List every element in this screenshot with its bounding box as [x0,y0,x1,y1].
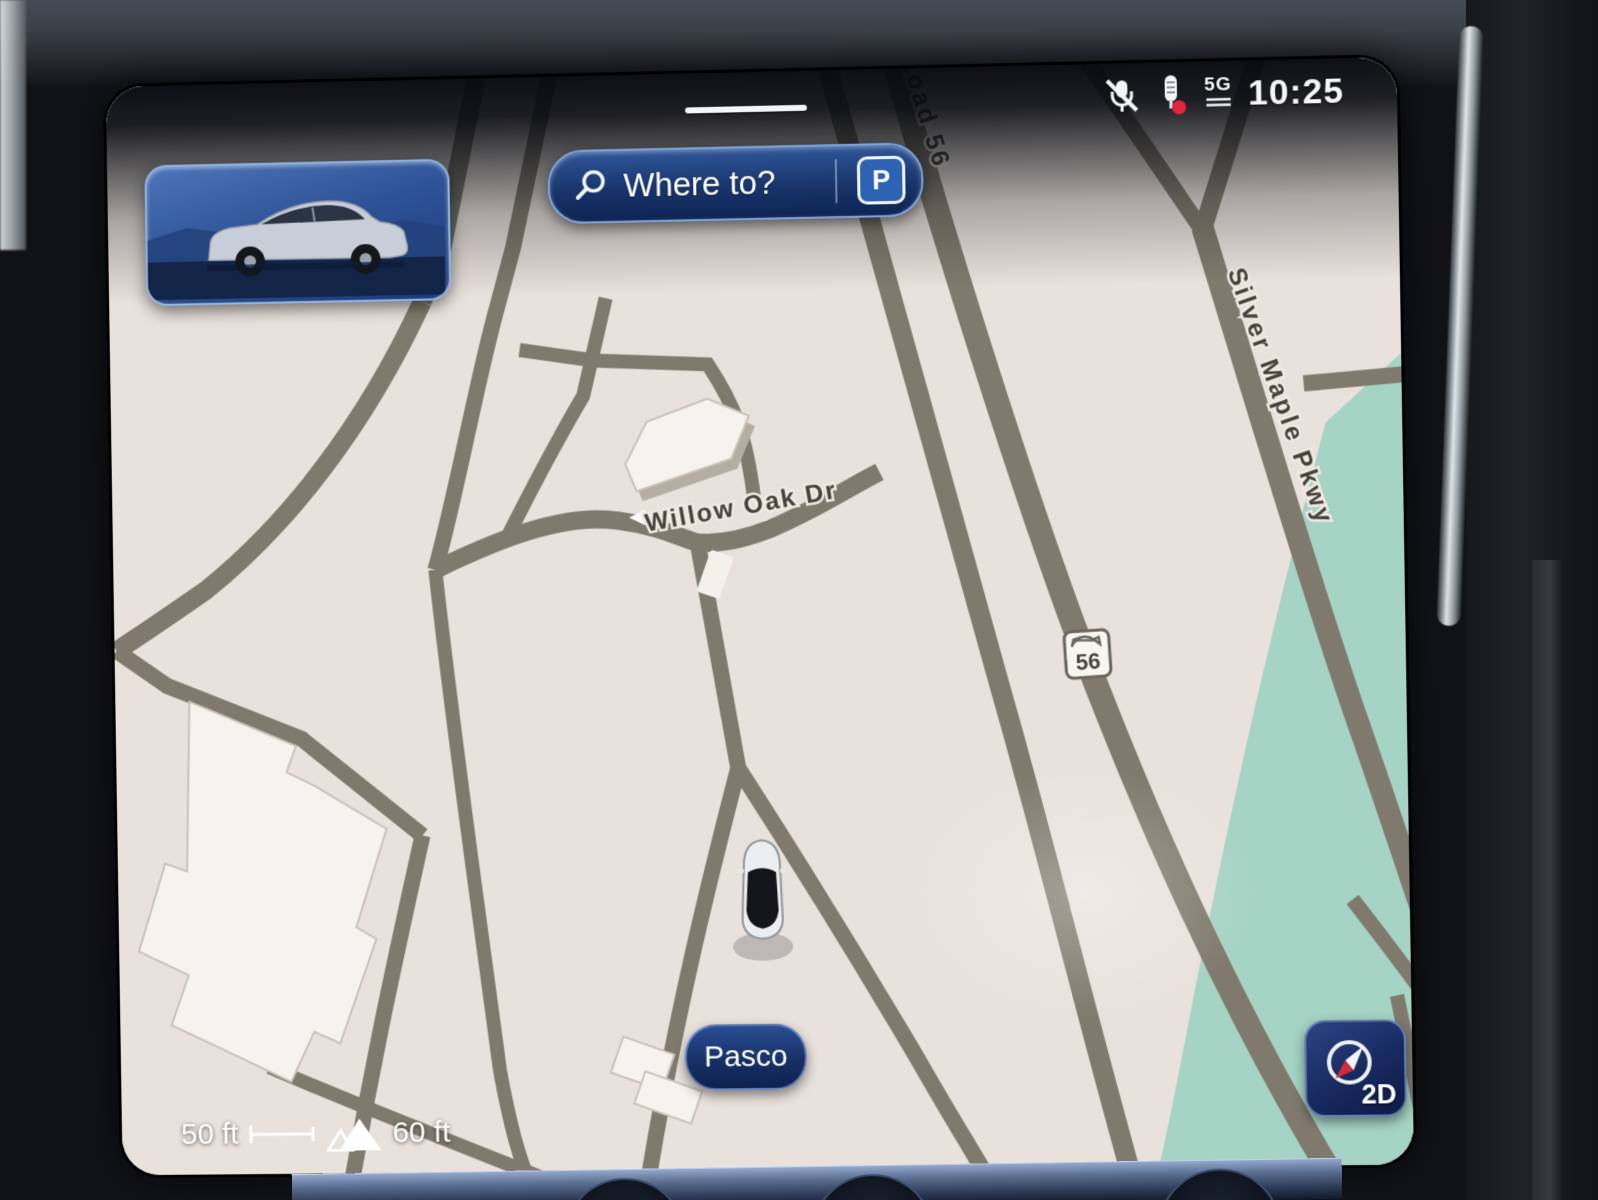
map-view-mode-button[interactable]: 2D [1304,1019,1407,1117]
dashboard-photo: Willow Oak Dr Silver Maple Pkwy Road 56 … [0,0,1598,1200]
clock: 10:25 [1248,71,1344,113]
vent-knob [810,1173,936,1200]
status-bar: 5G 10:25 [1101,70,1344,118]
search-divider [835,159,838,203]
network-label: 5G [1204,76,1232,95]
search-placeholder: Where to? [623,162,835,205]
vehicle-suv-side-view [146,161,445,300]
elevation-mountain-icon [327,1115,383,1151]
scale-label: 50 ft [181,1118,239,1152]
search-icon [569,166,609,207]
signal-5g-icon: 5G [1204,76,1232,113]
left-chrome-strip [0,0,26,250]
scale-bar-icon [248,1122,317,1146]
mic-muted-icon [1101,77,1142,116]
elevation-label: 60 ft [392,1116,450,1150]
vehicle-card[interactable] [144,159,451,307]
dashboard-right-trim-band [1532,560,1562,1200]
map-scale-row: 50 ft 60 ft [181,1115,451,1153]
view-mode-label: 2D [1361,1079,1397,1111]
parking-button[interactable]: P [857,156,906,205]
city-label-button[interactable]: Pasco [684,1024,807,1091]
voice-assistant-icon [1157,74,1188,117]
vent-knob [562,1177,688,1200]
route-shield-number: 56 [1075,648,1101,675]
destination-search-bar[interactable]: Where to? P [547,142,924,224]
route-56-shield: 56 [1064,629,1112,678]
infotainment-screen[interactable]: Willow Oak Dr Silver Maple Pkwy Road 56 … [106,57,1414,1175]
vent-knob [1157,1168,1283,1200]
